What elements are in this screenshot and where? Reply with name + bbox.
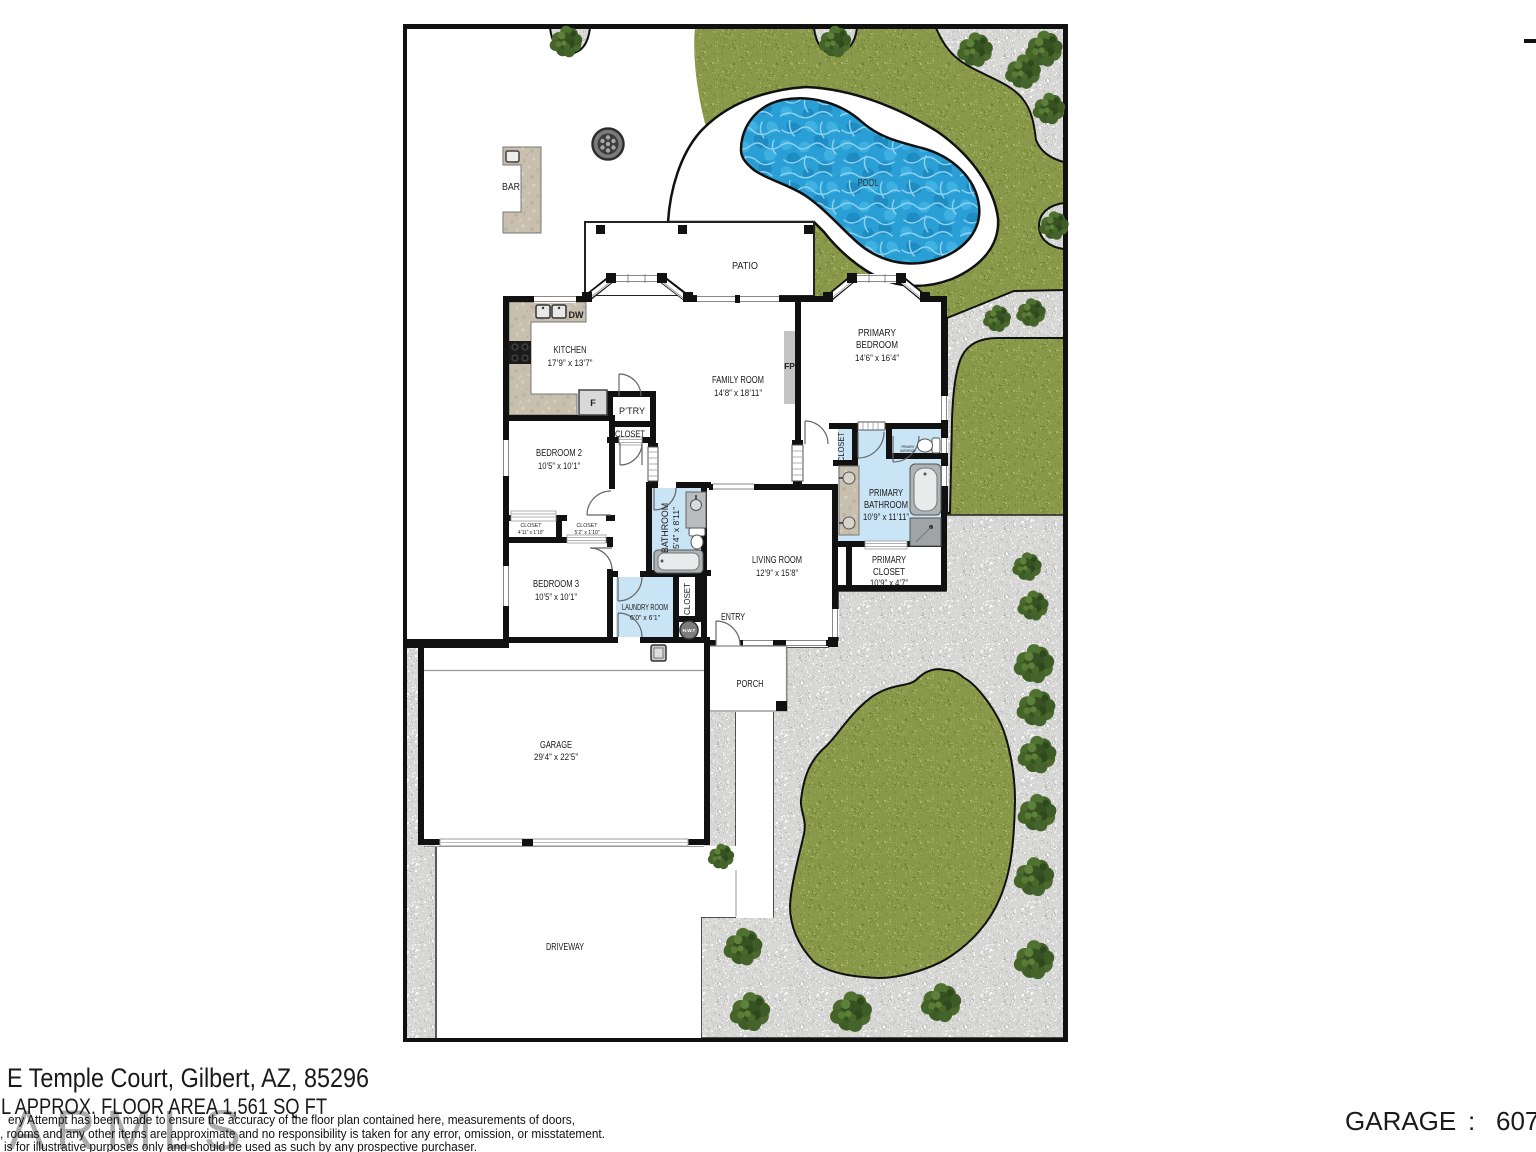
svg-text:POOL: POOL xyxy=(858,178,879,189)
svg-text:FAMILY ROOM: FAMILY ROOM xyxy=(712,374,764,386)
svg-text:ery Attempt has been made to e: ery Attempt has been made to ensure the … xyxy=(8,1112,575,1127)
svg-text:LAUNDRY ROOM: LAUNDRY ROOM xyxy=(622,602,668,612)
svg-text:PRIMARY: PRIMARY xyxy=(858,327,896,339)
svg-text:BAR: BAR xyxy=(502,182,520,193)
svg-text:5’2” x 1’10”: 5’2” x 1’10” xyxy=(575,530,600,536)
svg-text:DRIVEWAY: DRIVEWAY xyxy=(546,942,584,953)
svg-text:PRIMARY: PRIMARY xyxy=(869,488,903,499)
svg-text:10’5” x 10’1”: 10’5” x 10’1” xyxy=(535,592,577,603)
svg-text:CLOSET: CLOSET xyxy=(577,523,599,529)
svg-text:BEDROOM: BEDROOM xyxy=(856,339,898,351)
svg-text:GARAGE: GARAGE xyxy=(540,740,572,751)
svg-text:H.W.T: H.W.T xyxy=(683,628,696,633)
svg-text:BEDROOM 2: BEDROOM 2 xyxy=(536,447,582,459)
svg-text:PORCH: PORCH xyxy=(737,679,764,690)
svg-text:CLOSET: CLOSET xyxy=(521,523,543,529)
svg-text:17’9” x 13’7”: 17’9” x 13’7” xyxy=(548,358,593,369)
svg-text:CLOSET: CLOSET xyxy=(615,429,645,440)
svg-text:14’6” x 16’4”: 14’6” x 16’4” xyxy=(855,353,899,364)
svg-text:10’9” x 11’11”: 10’9” x 11’11” xyxy=(863,512,909,522)
svg-text:FP: FP xyxy=(784,361,795,371)
svg-text:6’0” x 6’1”: 6’0” x 6’1” xyxy=(630,613,660,622)
svg-text::: : xyxy=(1468,1106,1475,1136)
svg-text:ENTRY: ENTRY xyxy=(721,612,745,623)
svg-text:29’4” x 22’5”: 29’4” x 22’5” xyxy=(534,752,578,763)
svg-text:P’TRY: P’TRY xyxy=(619,406,646,417)
svg-text:LIVING ROOM: LIVING ROOM xyxy=(752,554,802,566)
svg-text:5’4” x 8’11”: 5’4” x 8’11” xyxy=(671,507,681,549)
svg-text:CLOSET: CLOSET xyxy=(836,432,846,462)
svg-text:607: 607 xyxy=(1496,1106,1536,1136)
svg-text:14’8” x 18’11”: 14’8” x 18’11” xyxy=(714,388,762,399)
svg-text:PATIO: PATIO xyxy=(732,261,758,272)
svg-text:5’5” x 4’1”: 5’5” x 4’1” xyxy=(902,453,915,457)
svg-text:BATHROOM: BATHROOM xyxy=(864,500,908,511)
svg-text:12’9” x 15’8”: 12’9” x 15’8” xyxy=(756,568,798,579)
svg-text:E Temple Court, Gilbert, AZ, 8: E Temple Court, Gilbert, AZ, 85296 xyxy=(7,1063,369,1093)
svg-text:10’5” x 10’1”: 10’5” x 10’1” xyxy=(538,461,580,472)
svg-text:BEDROOM 3: BEDROOM 3 xyxy=(533,578,579,590)
svg-text:CLOSET: CLOSET xyxy=(873,567,905,578)
svg-text:BATHROOM: BATHROOM xyxy=(660,503,671,553)
svg-text:10’9” x 4’7”: 10’9” x 4’7” xyxy=(870,578,908,588)
svg-text:DW: DW xyxy=(569,310,584,320)
svg-text:GARAGE: GARAGE xyxy=(1345,1106,1456,1136)
svg-text:KITCHEN: KITCHEN xyxy=(554,344,587,356)
svg-text:is for illustrative purposes o: is for illustrative purposes only and sh… xyxy=(4,1139,477,1152)
svg-text:CLOSET: CLOSET xyxy=(682,583,692,615)
svg-text:PRIMARY: PRIMARY xyxy=(872,555,906,566)
svg-text:4’11” x 1’10”: 4’11” x 1’10” xyxy=(518,530,544,536)
svg-text:F: F xyxy=(590,398,596,408)
